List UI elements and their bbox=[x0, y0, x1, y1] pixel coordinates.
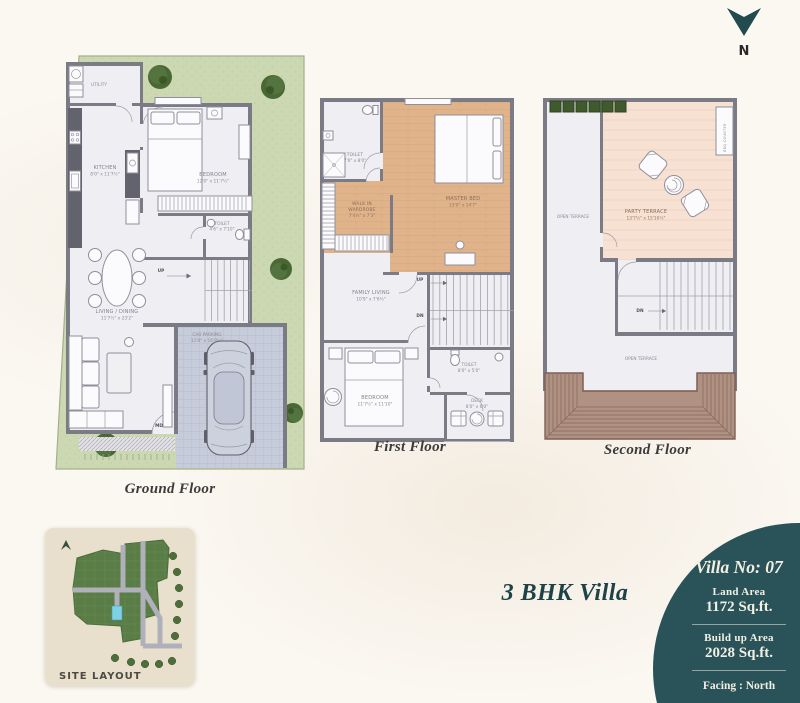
site-north-icon bbox=[61, 540, 71, 550]
utility-label: UTILITY bbox=[91, 82, 107, 88]
buildup-area-value: 2028 Sq.ft. bbox=[705, 645, 773, 662]
sitout-deck bbox=[79, 437, 175, 451]
ground-floor-plan: UTILITY KITCHEN 8'0" x 11'7½" BEDROOM 12… bbox=[55, 55, 305, 470]
master-label: MASTER BED bbox=[446, 196, 481, 202]
parking-label: CAR PARKING bbox=[192, 332, 221, 338]
deck-dims: 8'0" x 6'0" bbox=[466, 404, 489, 410]
deck-label: DECK bbox=[471, 398, 483, 404]
family-label: FAMILY LIVING bbox=[352, 290, 390, 296]
md-marker: MD bbox=[155, 423, 163, 429]
north-indicator: N bbox=[722, 6, 766, 59]
bedroom-dims: 12'0" x 11'7½" bbox=[197, 178, 229, 185]
f-bedroom-label: BEDROOM bbox=[361, 395, 389, 401]
kitchen-dims: 8'0" x 11'7½" bbox=[90, 171, 119, 178]
f-dn-marker: DN bbox=[416, 313, 424, 319]
parking-dims: 11'0" x 16'8½" bbox=[191, 337, 223, 344]
party-terrace-dims: 13'7½" x 15'10½" bbox=[626, 215, 665, 222]
divider bbox=[692, 624, 786, 625]
toilet1-label: TOILET bbox=[346, 152, 364, 158]
up-marker: UP bbox=[158, 268, 165, 274]
site-map: SITE LAYOUT bbox=[45, 528, 195, 686]
living-label: LIVING / DINING bbox=[96, 309, 139, 315]
round-table bbox=[665, 176, 684, 195]
deck-furniture bbox=[451, 411, 503, 426]
first-floor-label: First Floor bbox=[340, 439, 480, 456]
page-canvas: N bbox=[0, 0, 800, 703]
dining-set bbox=[89, 249, 146, 308]
toilet1-dims: 7'0" x 8'0" bbox=[344, 158, 367, 164]
s-dn-marker: DN bbox=[636, 308, 644, 314]
toilet2-dims: 8'0" x 5'0" bbox=[458, 368, 481, 374]
villa-title: 3 BHK Villa bbox=[455, 580, 675, 607]
family-dims: 10'9" x 7'6½" bbox=[356, 296, 385, 303]
info-panel-content: Villa No: 07 Land Area 1172 Sq.ft. Build… bbox=[673, 557, 800, 692]
wardrobe-label1: WALK IN bbox=[352, 201, 372, 207]
north-label: N bbox=[722, 44, 766, 59]
car-icon bbox=[204, 341, 255, 455]
f-up-marker: UP bbox=[417, 277, 424, 283]
second-floor-label: Second Floor bbox=[575, 442, 720, 459]
open-terrace-bottom-label: OPEN TERRACE bbox=[625, 356, 657, 361]
divider bbox=[692, 670, 786, 671]
f-bedroom-dims: 11'7½" x 11'10" bbox=[358, 401, 393, 408]
ground-floor-label: Ground Floor bbox=[100, 481, 240, 498]
first-floor-plan: TOILET 7'0" x 8'0" WALK IN WARDROBE 7'4½… bbox=[317, 95, 517, 445]
toilet-dims: 4'6" x 7'10" bbox=[209, 227, 234, 233]
bbq-label: BBQ COUNTER bbox=[723, 123, 727, 152]
wardrobe-dims: 7'4½" x 7'3" bbox=[349, 212, 376, 219]
info-panel: Villa No: 07 Land Area 1172 Sq.ft. Build… bbox=[653, 523, 800, 703]
land-area-value: 1172 Sq.ft. bbox=[705, 599, 772, 616]
facing-label: Facing : North bbox=[703, 680, 775, 692]
party-terrace-label: PARTY TERRACE bbox=[625, 209, 667, 215]
toilet2-label: TOILET bbox=[460, 362, 476, 368]
north-arrow-icon bbox=[724, 6, 764, 38]
site-layout-card: SITE LAYOUT bbox=[45, 528, 195, 686]
living-dims: 11'7½" x 23'2" bbox=[101, 315, 133, 322]
toilet-label: TOILET bbox=[213, 221, 229, 227]
site-layout-title: SITE LAYOUT bbox=[59, 671, 142, 682]
villa-number: Villa No: 07 bbox=[695, 557, 783, 578]
utility-fixtures bbox=[69, 66, 83, 97]
highlighted-plot bbox=[112, 606, 122, 620]
second-floor-plan: BBQ COUNTER bbox=[540, 95, 740, 445]
open-terrace-left-label: OPEN TERRACE bbox=[557, 214, 589, 219]
kitchen-label: KITCHEN bbox=[93, 165, 116, 171]
master-dims: 13'0" x 14'7" bbox=[449, 203, 477, 209]
bedroom-label: BEDROOM bbox=[199, 172, 227, 178]
wardrobe-label2: WARDROBE bbox=[348, 207, 375, 213]
land-area-label: Land Area bbox=[713, 586, 766, 598]
buildup-area-label: Build up Area bbox=[704, 632, 774, 644]
